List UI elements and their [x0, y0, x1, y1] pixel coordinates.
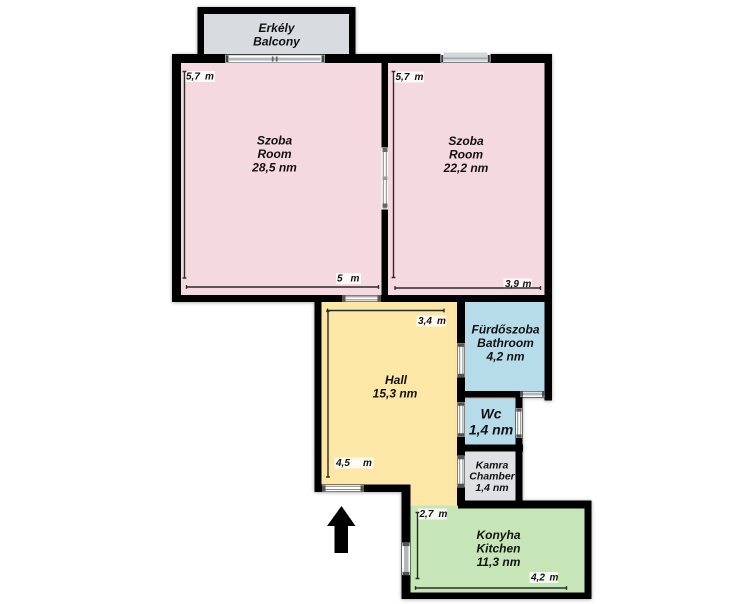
svg-text:Balcony: Balcony	[253, 35, 301, 49]
svg-text:22,2 nm: 22,2 nm	[443, 161, 489, 175]
svg-text:m: m	[439, 509, 448, 520]
svg-text:Chamber: Chamber	[469, 471, 515, 483]
svg-text:m: m	[363, 458, 372, 469]
svg-text:5: 5	[337, 274, 343, 285]
svg-text:1,4 nm: 1,4 nm	[469, 422, 513, 438]
svg-text:3,4: 3,4	[418, 316, 432, 327]
svg-text:Fürdőszoba: Fürdőszoba	[472, 323, 540, 337]
svg-text:4,2: 4,2	[530, 573, 545, 584]
svg-text:Hall: Hall	[385, 373, 408, 387]
svg-text:4,2 nm: 4,2 nm	[485, 350, 524, 364]
svg-text:Szoba: Szoba	[257, 134, 293, 148]
svg-text:m: m	[437, 316, 446, 327]
svg-text:4,5: 4,5	[335, 458, 350, 469]
svg-text:Room: Room	[258, 147, 292, 161]
svg-text:Room: Room	[449, 148, 483, 162]
svg-text:15,3 nm: 15,3 nm	[373, 387, 418, 401]
svg-text:Bathroom: Bathroom	[477, 336, 534, 350]
svg-text:Kitchen: Kitchen	[476, 542, 520, 556]
svg-text:5,7: 5,7	[396, 72, 410, 83]
svg-text:11,3 nm: 11,3 nm	[477, 555, 521, 569]
svg-text:m: m	[205, 72, 214, 83]
svg-text:3,9: 3,9	[505, 279, 519, 290]
svg-text:m: m	[550, 573, 559, 584]
svg-text:1,4 nm: 1,4 nm	[475, 482, 508, 494]
svg-text:5,7: 5,7	[186, 72, 200, 83]
svg-text:2,7: 2,7	[419, 509, 434, 520]
svg-text:Szoba: Szoba	[448, 134, 484, 148]
svg-text:Konyha: Konyha	[476, 528, 520, 542]
svg-text:m: m	[523, 279, 532, 290]
svg-text:Erkély: Erkély	[258, 21, 295, 35]
svg-text:Wc: Wc	[481, 406, 502, 422]
svg-text:m: m	[351, 274, 360, 285]
svg-text:28,5 nm: 28,5 nm	[251, 161, 297, 175]
svg-text:m: m	[415, 72, 424, 83]
